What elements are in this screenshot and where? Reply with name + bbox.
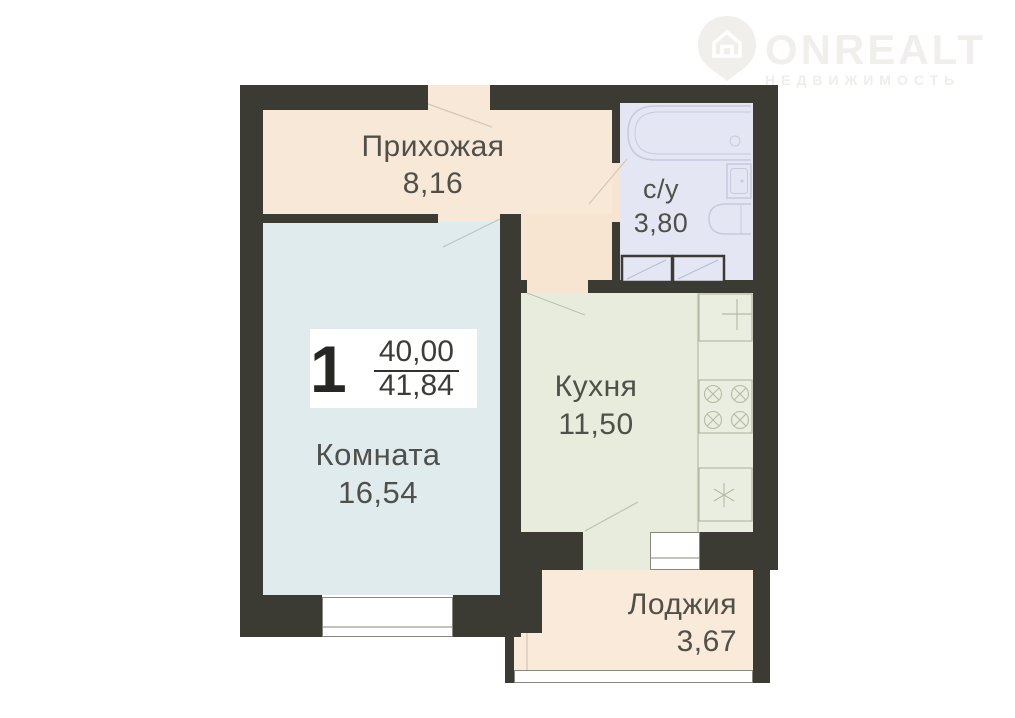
- living-area-value: 40,00: [374, 335, 459, 372]
- bathroom-area: 3,80: [608, 206, 714, 240]
- loggia-wall-right: [753, 570, 770, 683]
- kitchen-wall-bottom-right: [700, 532, 753, 570]
- loggia-area: 3,67: [560, 623, 737, 660]
- outer-wall-right: [753, 85, 778, 570]
- watermark-brand: ONREALT: [765, 28, 986, 72]
- bathroom-name: с/у: [608, 172, 714, 206]
- onrealt-watermark: ONREALT НЕДВИЖИМОСТЬ: [695, 14, 986, 88]
- kitchen-wall-top: [588, 280, 778, 293]
- kitchen-loggia-window: [650, 532, 700, 570]
- entrance-door-opening: [428, 85, 490, 110]
- living-room-area: 16,54: [278, 474, 478, 512]
- kitchen-name: Кухня: [498, 368, 694, 406]
- loggia-glazing: [514, 670, 753, 683]
- loggia-label: Лоджия 3,67: [560, 586, 737, 660]
- total-area-value: 41,84: [379, 367, 454, 402]
- kitchen-door-jamb: [500, 280, 527, 293]
- kitchen-area: 11,50: [498, 406, 694, 444]
- living-hallway-wall: [263, 214, 438, 223]
- living-room-label: Комната 16,54: [278, 436, 478, 512]
- living-room-window: [322, 597, 453, 637]
- hallway-area: 8,16: [308, 165, 558, 202]
- kitchen-loggia-passage-floor: [583, 532, 650, 570]
- living-room-name: Комната: [278, 436, 478, 474]
- bathroom-wall-left-upper: [612, 103, 620, 163]
- living-room-floor: [263, 222, 500, 595]
- loggia-name: Лоджия: [560, 586, 737, 623]
- watermark-subtitle: НЕДВИЖИМОСТЬ: [765, 72, 986, 88]
- rooms-count: 1: [310, 336, 347, 402]
- hallway-name: Прихожая: [308, 128, 558, 165]
- area-fraction: 40,00 41,84: [356, 335, 477, 403]
- kitchen-wall-bottom-left: [521, 532, 583, 570]
- apartment-summary-box: 1 40,00 41,84: [310, 329, 477, 408]
- onrealt-pin-house-icon: [695, 14, 759, 84]
- living-wall-bottom-right: [453, 595, 521, 637]
- floorplan-page: ONREALT НЕДВИЖИМОСТЬ: [0, 0, 1015, 718]
- outer-wall-left: [240, 85, 263, 637]
- living-wall-bottom-left: [240, 595, 322, 637]
- bathroom-label: с/у 3,80: [608, 172, 714, 240]
- kitchen-label: Кухня 11,50: [498, 368, 694, 444]
- hallway-label: Прихожая 8,16: [308, 128, 558, 202]
- loggia-floor-step: [514, 633, 554, 672]
